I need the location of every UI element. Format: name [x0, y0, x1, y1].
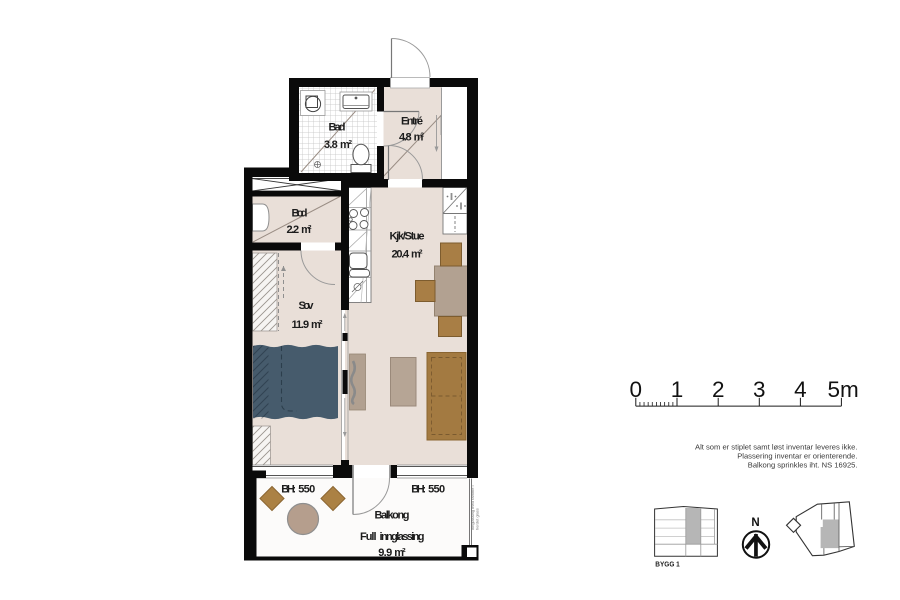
svg-text:herdet glass: herdet glass [475, 508, 480, 530]
svg-text:4: 4 [794, 377, 807, 402]
svg-text:5m: 5m [828, 377, 859, 402]
svg-text:N: N [751, 517, 759, 529]
svg-text:9.9: 9.9 [378, 547, 392, 559]
svg-text:BH:: BH: [411, 484, 426, 496]
svg-text:2: 2 [712, 377, 725, 402]
svg-text:Balkong sprinkles iht. NS 1692: Balkong sprinkles iht. NS 16925. [748, 460, 858, 469]
svg-text:1: 1 [671, 377, 684, 402]
svg-text:11.9: 11.9 [292, 319, 310, 331]
svg-text:m²: m² [394, 547, 406, 559]
svg-text:Alt som er stiplet samt løst i: Alt som er stiplet samt løst inventar le… [695, 443, 857, 452]
svg-text:Balkong: Balkong [375, 510, 410, 522]
svg-text:550: 550 [298, 484, 315, 496]
svg-text:3.8: 3.8 [324, 139, 338, 151]
svg-text:2.2: 2.2 [287, 224, 300, 236]
svg-text:Bod: Bod [292, 208, 308, 220]
svg-text:Entré: Entré [401, 116, 423, 128]
svg-text:Sov: Sov [299, 300, 315, 312]
svg-text:m²: m² [340, 139, 352, 151]
svg-text:Bad: Bad [329, 122, 346, 134]
svg-text:Full: Full [360, 531, 377, 543]
svg-text:BYGG 1: BYGG 1 [655, 560, 680, 569]
svg-text:4.8: 4.8 [399, 132, 412, 144]
svg-text:20.4: 20.4 [392, 249, 410, 261]
svg-text:Kjk/Stue: Kjk/Stue [390, 231, 425, 243]
svg-text:3: 3 [753, 377, 766, 402]
svg-text:0: 0 [630, 377, 643, 402]
svg-text:550: 550 [428, 484, 445, 496]
svg-text:m²: m² [414, 132, 425, 144]
svg-text:m²: m² [411, 249, 423, 261]
svg-text:innglassing: innglassing [380, 531, 425, 543]
svg-text:m²: m² [311, 319, 323, 331]
svg-text:m²: m² [301, 224, 312, 236]
svg-text:Plassering inventar er oriente: Plassering inventar er orienterende. [737, 451, 857, 460]
svg-text:BH:: BH: [281, 484, 296, 496]
